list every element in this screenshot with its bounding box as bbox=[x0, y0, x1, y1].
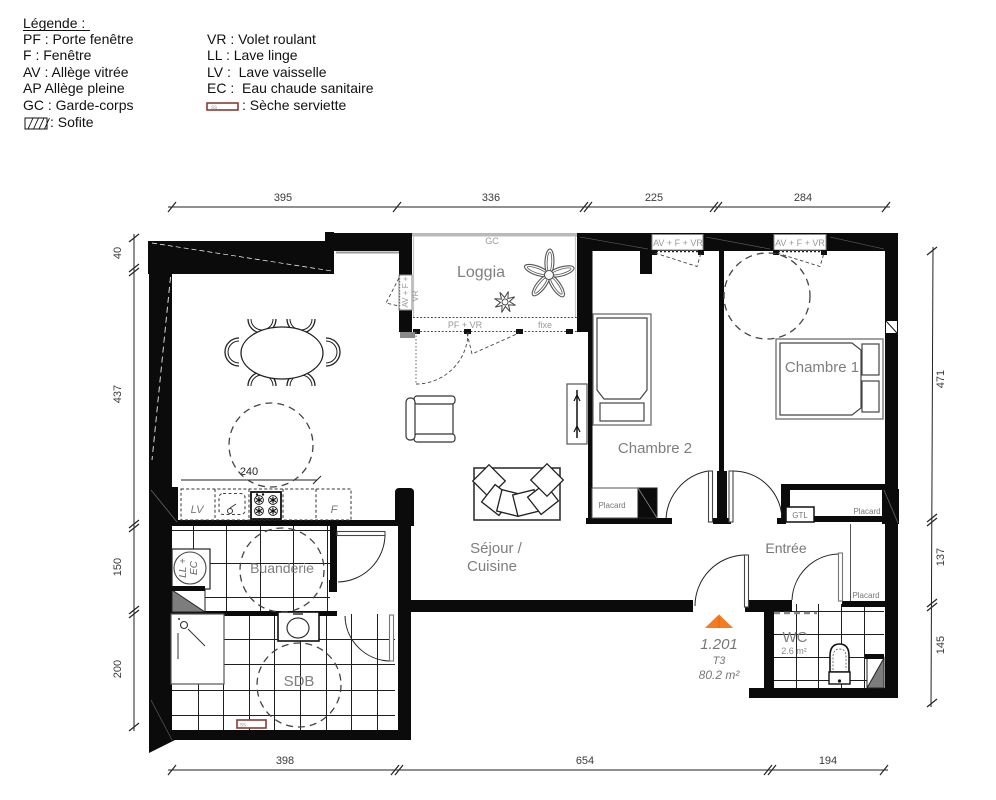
svg-text:PF : Porte fenêtre: PF : Porte fenêtre bbox=[23, 31, 134, 47]
svg-text:Chambre 1: Chambre 1 bbox=[785, 359, 859, 376]
svg-text:GTL: GTL bbox=[792, 511, 808, 520]
svg-text:Buanderie: Buanderie bbox=[250, 560, 314, 576]
svg-text:VR : Volet roulant: VR : Volet roulant bbox=[207, 31, 316, 47]
svg-text:Loggia: Loggia bbox=[457, 264, 505, 281]
svg-text:PF + VR: PF + VR bbox=[448, 320, 483, 330]
svg-text:200: 200 bbox=[112, 660, 124, 678]
svg-text:Placard: Placard bbox=[598, 501, 625, 510]
svg-text:AV + F +: AV + F + bbox=[401, 276, 410, 307]
svg-text:145: 145 bbox=[935, 636, 947, 654]
svg-text:EC: EC bbox=[189, 560, 200, 575]
svg-text:Cuisine: Cuisine bbox=[467, 558, 517, 575]
svg-text:ss: ss bbox=[211, 105, 217, 111]
svg-text:GC : Garde-corps: GC : Garde-corps bbox=[23, 97, 133, 113]
svg-text:398: 398 bbox=[276, 755, 294, 767]
svg-text:654: 654 bbox=[576, 755, 594, 767]
svg-text:AV + F + VR: AV + F + VR bbox=[653, 238, 703, 248]
svg-text:AV + F + VR: AV + F + VR bbox=[775, 238, 825, 248]
svg-text:F : Fenêtre: F : Fenêtre bbox=[23, 47, 92, 63]
svg-text:fixe: fixe bbox=[538, 320, 552, 330]
svg-text:284: 284 bbox=[794, 192, 812, 204]
svg-text:GC: GC bbox=[485, 236, 499, 246]
svg-text:80.2 m²: 80.2 m² bbox=[699, 668, 741, 682]
svg-text:1.201: 1.201 bbox=[700, 636, 738, 653]
svg-text:395: 395 bbox=[274, 192, 292, 204]
svg-text:150: 150 bbox=[112, 558, 124, 576]
svg-text:LV : Lave vaisselle: LV : Lave vaisselle bbox=[207, 64, 327, 80]
svg-text:WC: WC bbox=[783, 629, 808, 646]
svg-text:Séjour /: Séjour / bbox=[470, 540, 523, 557]
svg-text:137: 137 bbox=[935, 548, 947, 566]
svg-text:LL : Lave linge: LL : Lave linge bbox=[207, 47, 298, 63]
svg-text:LV: LV bbox=[191, 504, 206, 516]
svg-text:437: 437 bbox=[112, 385, 124, 403]
svg-text:2.6 m²: 2.6 m² bbox=[781, 646, 807, 656]
svg-text:: Sèche serviette: : Sèche serviette bbox=[242, 97, 346, 113]
svg-text:Placard: Placard bbox=[852, 591, 879, 600]
svg-text:Légende :: Légende : bbox=[23, 15, 85, 31]
svg-text:Chambre 2: Chambre 2 bbox=[618, 440, 692, 457]
svg-text:336: 336 bbox=[482, 192, 500, 204]
svg-text:SDB: SDB bbox=[284, 673, 315, 690]
svg-text:LL +: LL + bbox=[178, 558, 189, 578]
svg-text:ss: ss bbox=[240, 723, 246, 729]
svg-text:225: 225 bbox=[645, 192, 663, 204]
svg-text:EC : Eau chaude sanitaire: EC : Eau chaude sanitaire bbox=[207, 80, 374, 96]
svg-text:VR: VR bbox=[411, 290, 420, 301]
svg-text:: Sofite: : Sofite bbox=[50, 114, 94, 130]
svg-text:Entrée: Entrée bbox=[765, 540, 806, 556]
svg-text:AP Allège pleine: AP Allège pleine bbox=[23, 80, 125, 96]
svg-text:40: 40 bbox=[112, 247, 124, 259]
svg-text:AV : Allège vitrée: AV : Allège vitrée bbox=[23, 64, 129, 80]
svg-text:471: 471 bbox=[935, 370, 947, 388]
svg-text:T3: T3 bbox=[713, 655, 727, 667]
svg-text:194: 194 bbox=[819, 755, 837, 767]
svg-text:Placard: Placard bbox=[853, 507, 880, 516]
